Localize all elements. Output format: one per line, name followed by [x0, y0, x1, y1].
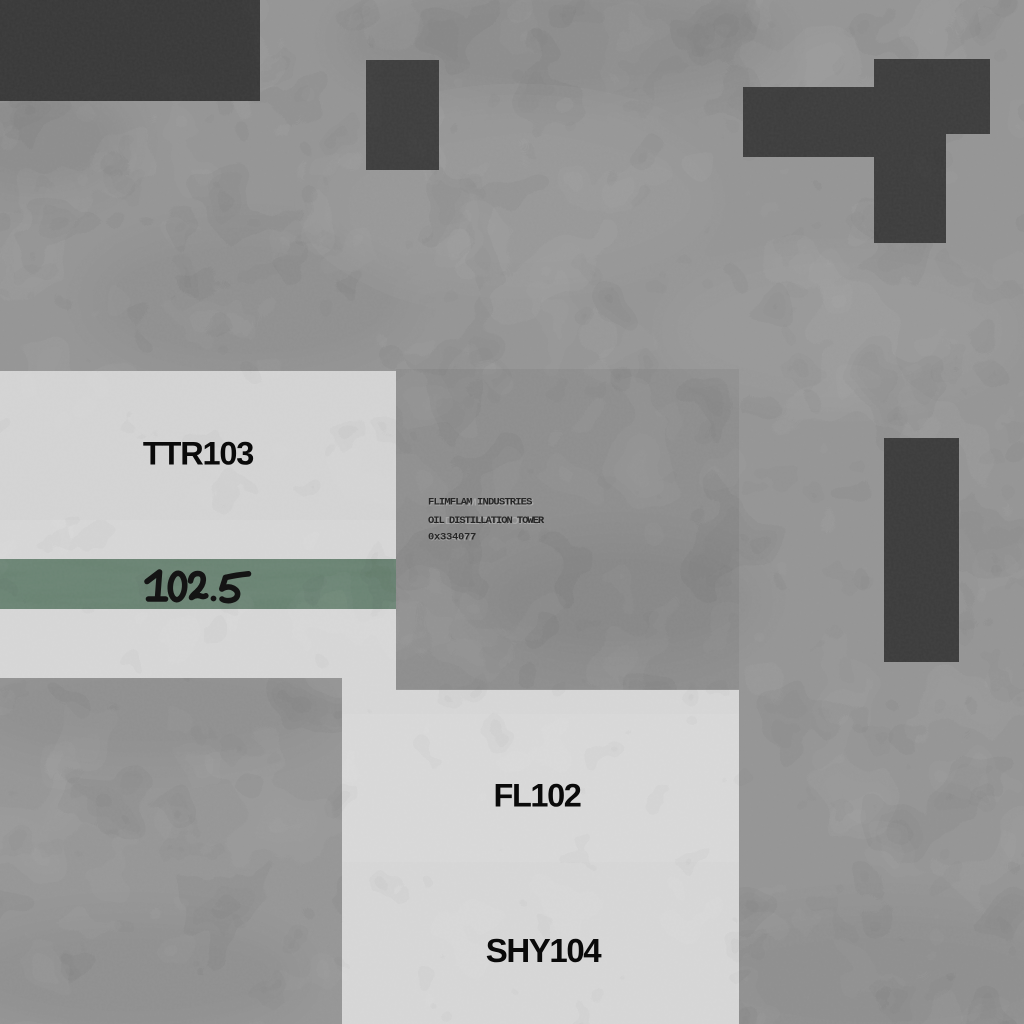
svg-text:TTR103: TTR103 — [143, 436, 253, 472]
svg-text:FL102: FL102 — [494, 778, 581, 814]
svg-text:0x334077: 0x334077 — [428, 531, 476, 543]
svg-text:OIL DISTILLATION TOWER: OIL DISTILLATION TOWER — [428, 515, 545, 527]
svg-text:SHY104: SHY104 — [486, 932, 603, 969]
svg-text:FLIMFLAM INDUSTRIES: FLIMFLAM INDUSTRIES — [428, 496, 532, 508]
